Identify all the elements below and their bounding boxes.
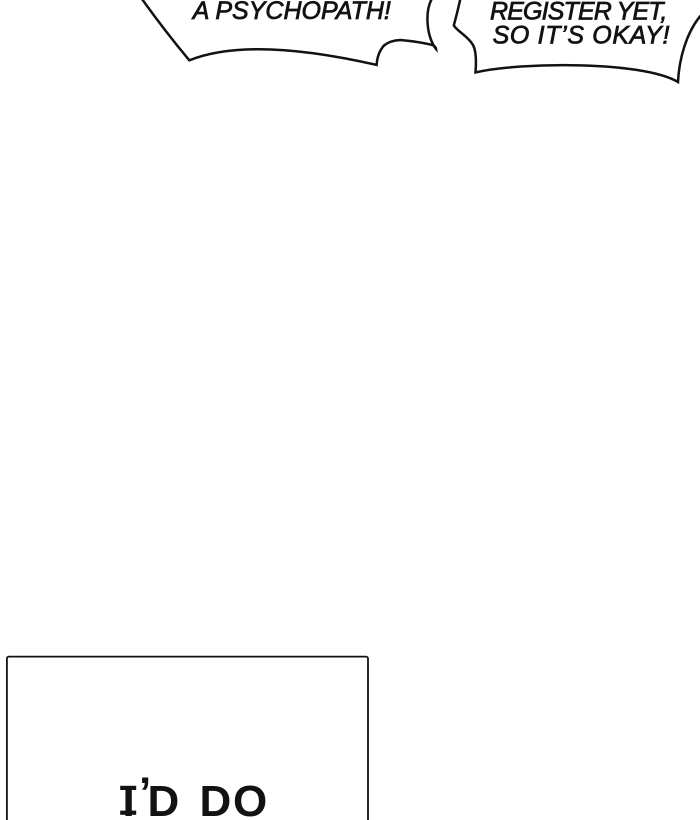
svg-text:SO IT’S OKAY!: SO IT’S OKAY!: [493, 22, 670, 50]
svg-text:I’DDO: I’DDO: [123, 768, 268, 820]
svg-text:A PSYCHOPATH!: A PSYCHOPATH!: [191, 0, 391, 25]
